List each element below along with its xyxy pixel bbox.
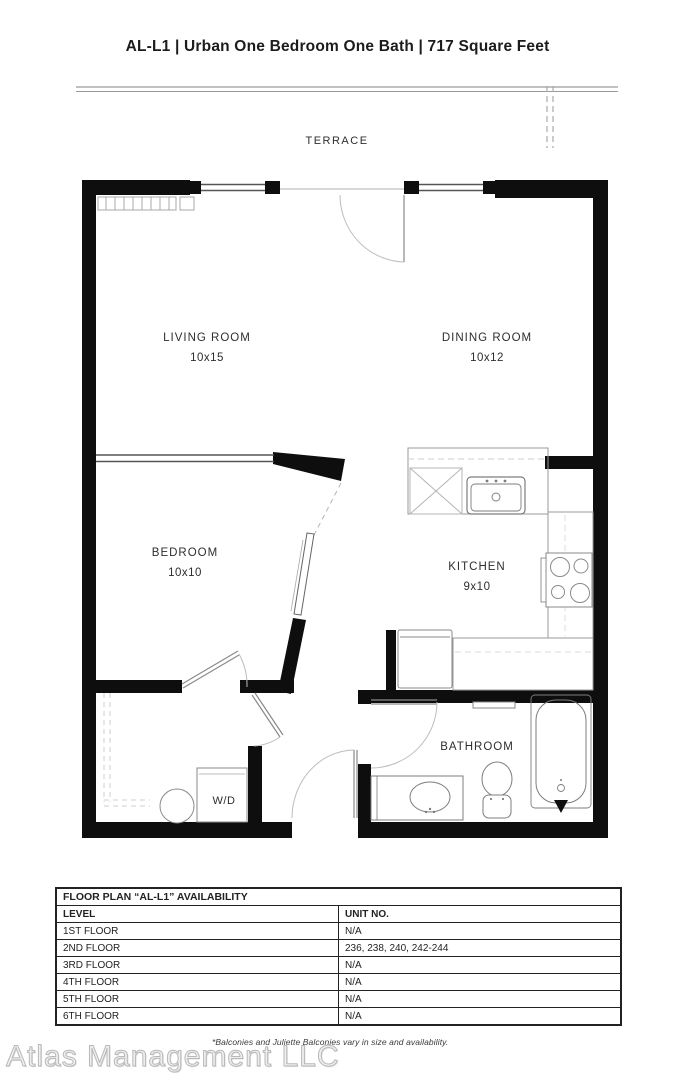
- units-cell: N/A: [339, 923, 622, 940]
- wall-left: [82, 180, 96, 838]
- window-jamb: [265, 181, 280, 194]
- room-label-terrace: TERRACE: [305, 135, 368, 147]
- col-header-unit: UNIT NO.: [339, 906, 622, 923]
- bedroom-sliding-door: [291, 483, 341, 615]
- watermark: Atlas Management LLC: [6, 1040, 340, 1074]
- units-cell: 236, 238, 240, 242-244: [339, 940, 622, 957]
- floor-plan: TERRACE: [0, 0, 675, 880]
- level-cell: 4TH FLOOR: [56, 974, 339, 991]
- table-title-row: FLOOR PLAN “AL-L1” AVAILABILITY: [56, 888, 621, 906]
- kitchen-sink-icon: [467, 477, 525, 514]
- table-row: 1ST FLOOR N/A: [56, 923, 621, 940]
- window-1: [201, 183, 265, 192]
- toilet-icon: [482, 762, 512, 818]
- doors: [182, 195, 437, 818]
- wall-bedroom-bottom-left: [82, 680, 182, 693]
- terrace-door: [340, 195, 404, 262]
- level-cell: 6TH FLOOR: [56, 1008, 339, 1026]
- washer-icon: [160, 789, 194, 823]
- level-cell: 3RD FLOOR: [56, 957, 339, 974]
- room-label-living: LIVING ROOM: [163, 332, 251, 344]
- windows: [201, 183, 483, 192]
- room-dims-bedroom: 10x10: [168, 567, 202, 579]
- wall-bottom-right: [358, 822, 608, 838]
- wall-fridge-stub: [386, 630, 396, 690]
- partition-living-bedroom: [96, 455, 274, 462]
- room-dims-kitchen: 9x10: [464, 581, 491, 593]
- level-cell: 2ND FLOOR: [56, 940, 339, 957]
- heater-icon: [98, 197, 194, 210]
- level-cell: 5TH FLOOR: [56, 991, 339, 1008]
- bedroom-door: [182, 651, 247, 688]
- room-label-bedroom: BEDROOM: [152, 547, 218, 559]
- room-dims-living: 10x15: [190, 352, 224, 364]
- room-label-kitchen: KITCHEN: [448, 561, 505, 573]
- wall-right: [593, 180, 608, 838]
- wardrobe-dashes: [104, 693, 150, 806]
- units-cell: N/A: [339, 1008, 622, 1026]
- wall-bedroom-bottom-right: [240, 680, 294, 693]
- bathtub-icon: [531, 695, 591, 813]
- table-row: 5TH FLOOR N/A: [56, 991, 621, 1008]
- table-row: 4TH FLOOR N/A: [56, 974, 621, 991]
- table-header-row: LEVEL UNIT NO.: [56, 906, 621, 923]
- exterior-walls: [82, 180, 608, 838]
- table-row: 3RD FLOOR N/A: [56, 957, 621, 974]
- wd-closet: W/D: [104, 693, 247, 823]
- vanity-sink-icon: [371, 776, 463, 820]
- wall-bath-top: [371, 690, 593, 703]
- room-label-wd: W/D: [213, 795, 236, 807]
- room-label-dining: DINING ROOM: [442, 332, 532, 344]
- room-dims-dining: 10x12: [470, 352, 504, 364]
- wall-bedroom-wedge: [273, 452, 345, 481]
- units-cell: N/A: [339, 974, 622, 991]
- wd-closet-door: [252, 693, 283, 746]
- room-label-bathroom: BATHROOM: [440, 741, 514, 753]
- bathroom-door: [371, 700, 437, 768]
- counter-top: [408, 448, 548, 514]
- table-row: 6TH FLOOR N/A: [56, 1008, 621, 1026]
- stove-icon: [541, 553, 592, 607]
- tub-spout-icon: [554, 800, 568, 813]
- fridge-icon: [398, 630, 452, 688]
- wall-kitchen-stub: [545, 456, 593, 469]
- window-jamb: [483, 181, 497, 194]
- wall-bottom-left: [82, 822, 292, 838]
- wall-top-right: [495, 180, 608, 198]
- units-cell: N/A: [339, 991, 622, 1008]
- wall-top-left: [82, 180, 190, 195]
- wall-bath-left-stub: [358, 690, 371, 704]
- towel-bar: [473, 702, 515, 708]
- bathroom: [371, 695, 591, 820]
- window-jamb: [404, 181, 419, 194]
- level-cell: 1ST FLOOR: [56, 923, 339, 940]
- interior-walls: [82, 452, 593, 838]
- availability-table: FLOOR PLAN “AL-L1” AVAILABILITY LEVEL UN…: [55, 887, 622, 1026]
- table-row: 2ND FLOOR 236, 238, 240, 242-244: [56, 940, 621, 957]
- window-jamb: [188, 181, 201, 194]
- table-title: FLOOR PLAN “AL-L1” AVAILABILITY: [56, 888, 621, 906]
- wall-wd-closet: [248, 746, 262, 822]
- counter-bottom: [453, 638, 593, 690]
- cabinet-x-icon: [410, 468, 462, 514]
- wall-bath-left: [358, 764, 371, 838]
- units-cell: N/A: [339, 957, 622, 974]
- entry-door: [292, 750, 357, 818]
- col-header-level: LEVEL: [56, 906, 339, 923]
- window-2: [419, 183, 483, 192]
